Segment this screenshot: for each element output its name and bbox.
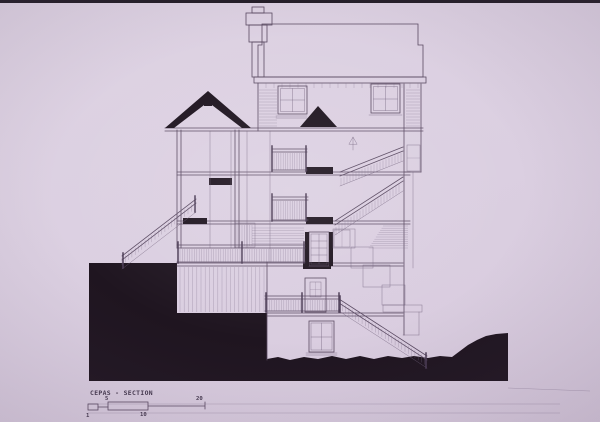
basement-window [306, 321, 337, 355]
main-roof [254, 24, 426, 88]
interior-stairs [335, 137, 403, 235]
deck-railing [177, 242, 305, 263]
basement-railing [265, 293, 340, 312]
french-door [305, 232, 333, 266]
clapboard-right [406, 90, 420, 126]
bay-window-right [407, 145, 420, 171]
chimney [246, 7, 272, 77]
tower-gable-poche [165, 91, 251, 128]
basement-level [265, 262, 427, 368]
porch-roof-poche [300, 106, 337, 127]
hillside-hatch [369, 226, 408, 248]
deck-skirt-lattice [180, 267, 264, 312]
basement-door [305, 278, 326, 312]
scale-label-5: 5 [105, 396, 108, 402]
window-right [369, 84, 402, 115]
architectural-section-drawing: CEPAS - SECTION 1 5 10 20 [0, 0, 600, 422]
tower-structure [165, 91, 270, 262]
drawing-title: CEPAS - SECTION [90, 389, 153, 397]
deck-panel [235, 223, 255, 247]
ground-line [508, 388, 590, 391]
clapboard-left [259, 90, 277, 126]
deck-boards [252, 228, 304, 244]
window-left [276, 86, 307, 118]
eave-band [254, 77, 426, 83]
scale-label-20: 20 [196, 396, 203, 402]
scale-bar: 1 5 10 20 [86, 396, 560, 419]
scale-label-1: 1 [86, 413, 90, 419]
slide-photo: CEPAS - SECTION 1 5 10 20 [0, 0, 600, 422]
hillside-steps [333, 229, 405, 305]
interior-railings [272, 146, 308, 221]
ground-poche [89, 263, 508, 381]
floor-slab-poche [183, 167, 333, 269]
lower-right-wall [383, 305, 422, 335]
scale-label-10: 10 [140, 412, 147, 418]
deck-window [334, 230, 350, 247]
